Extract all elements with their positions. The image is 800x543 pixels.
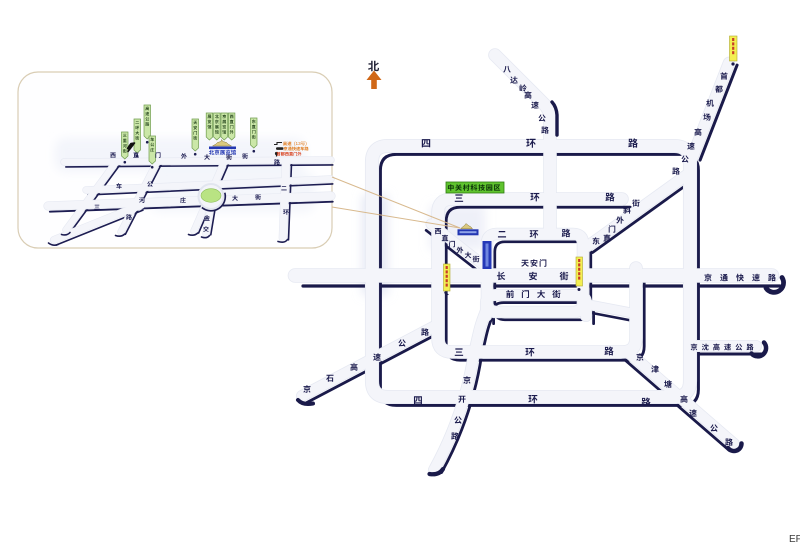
svg-text:EF: EF <box>789 534 800 543</box>
